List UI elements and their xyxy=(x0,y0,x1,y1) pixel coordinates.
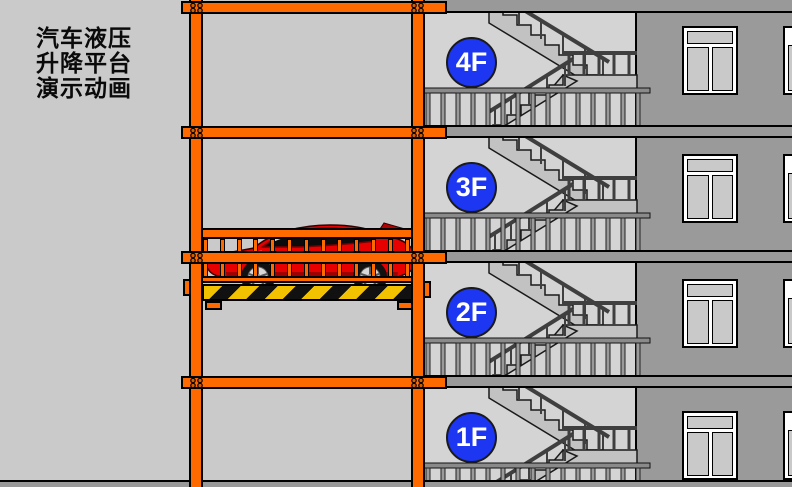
car-lift-platform xyxy=(0,0,792,487)
bolt-plate xyxy=(409,252,427,264)
lift-column-right xyxy=(411,0,425,487)
scene: 汽车液压 升降平台 演示动画 xyxy=(0,0,792,487)
bolt-plate xyxy=(409,377,427,389)
platform-fence-top-rail xyxy=(197,228,420,239)
bolt-plate xyxy=(188,377,206,389)
lift-column-left xyxy=(189,0,203,487)
bolt-plate xyxy=(188,127,206,139)
platform-fence-bottom-rail xyxy=(197,276,420,283)
bolt-plate xyxy=(188,252,206,264)
lift-crossbeam xyxy=(181,126,447,139)
platform-left-foot xyxy=(205,301,222,310)
lift-crossbeam xyxy=(181,251,447,264)
bolt-plate xyxy=(409,127,427,139)
hazard-stripe-apron xyxy=(202,284,417,301)
lift-crossbeam xyxy=(181,1,447,14)
bolt-plate xyxy=(409,2,427,14)
lift-crossbeam xyxy=(181,376,447,389)
bolt-plate xyxy=(188,2,206,14)
